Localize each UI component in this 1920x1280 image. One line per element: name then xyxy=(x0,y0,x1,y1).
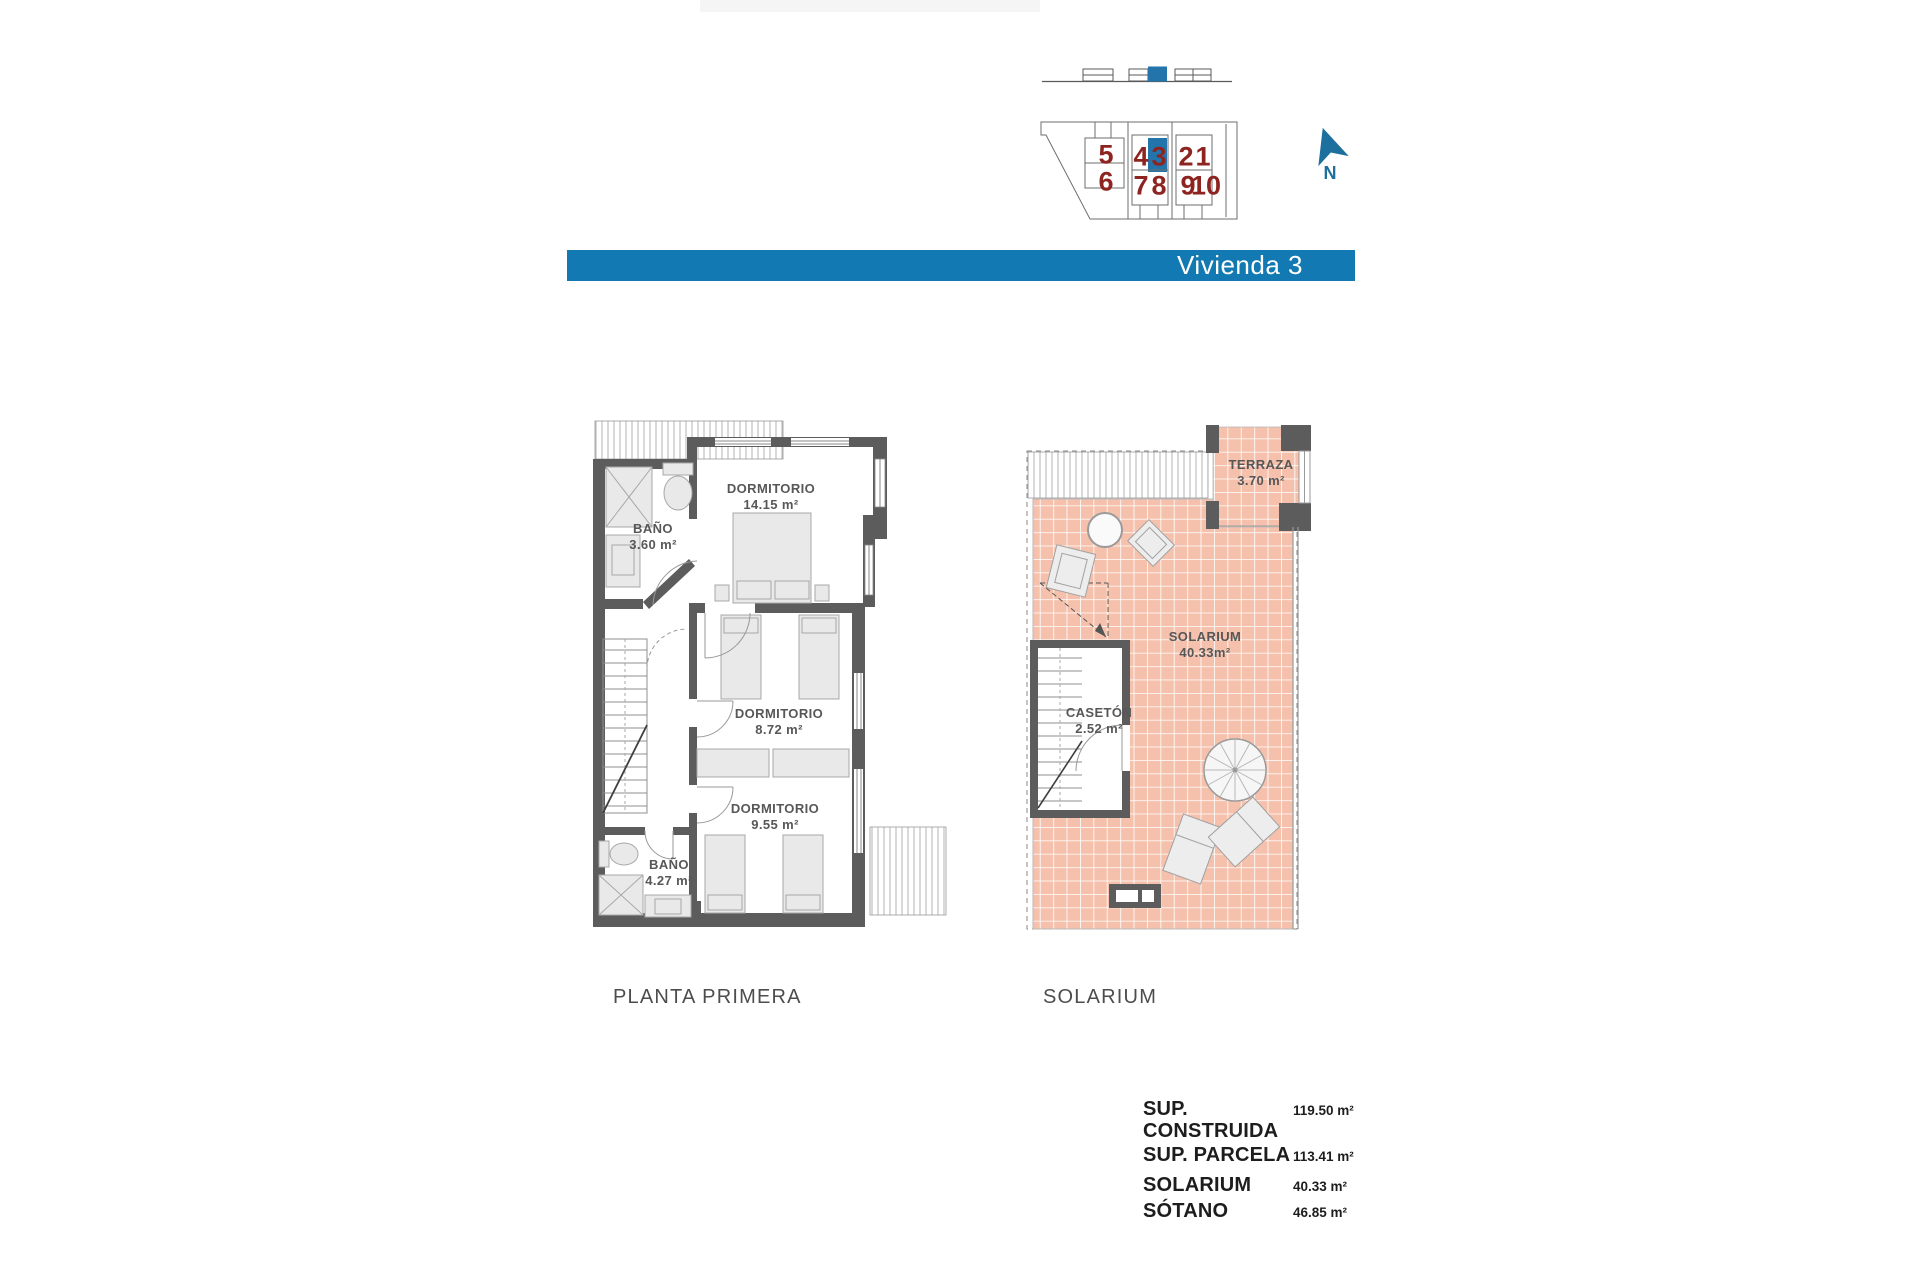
unit-number-2: 2 xyxy=(1178,144,1193,171)
room-label-terraza: TERRAZA 3.70 m² xyxy=(1229,457,1294,490)
round-table xyxy=(1088,513,1122,547)
summary-row-solarium: SOLARIUM 40.33 m² xyxy=(1143,1174,1354,1198)
caption-planta-primera: PLANTA PRIMERA xyxy=(613,986,802,1009)
room-label-bano-1: BAÑO 3.60 m² xyxy=(629,521,677,554)
plan-planta-primera: BAÑO 3.60 m² DORMITORIO 14.15 m² DORMITO… xyxy=(593,417,950,947)
room-label-dormitorio-2: DORMITORIO 8.72 m² xyxy=(735,706,823,739)
room-label-solarium: SOLARIUM 40.33m² xyxy=(1169,629,1242,662)
roof-hatch-bottom-right xyxy=(870,827,946,915)
summary-row-sotano: SÓTANO 46.85 m² xyxy=(1143,1200,1354,1224)
north-label: N xyxy=(1324,163,1337,183)
banner-title: Vivienda 3 xyxy=(567,250,1355,281)
wardrobe xyxy=(773,749,849,777)
unit-number-10: 10 xyxy=(1191,173,1221,200)
unit-number-3: 3 xyxy=(1151,144,1166,171)
summary-table: SUP. CONSTRUIDA 119.50 m² SUP. PARCELA 1… xyxy=(1143,1098,1354,1226)
plan-solarium: TERRAZA 3.70 m² SOLARIUM 40.33m² CASETÓN… xyxy=(1013,425,1338,955)
banner: Vivienda 3 xyxy=(567,250,1355,281)
brochure-page: 5 6 4 3 7 8 2 1 9 10 N Vivienda 3 xyxy=(0,0,1920,1280)
unit-number-4: 4 xyxy=(1133,144,1148,171)
north-arrow-icon: N xyxy=(1306,124,1350,184)
summary-row-sup-parcela: SUP. PARCELA 113.41 m² xyxy=(1143,1144,1354,1168)
unit-number-8: 8 xyxy=(1151,173,1166,200)
unit-number-5: 5 xyxy=(1098,142,1113,169)
room-label-dormitorio-3: DORMITORIO 9.55 m² xyxy=(731,801,819,834)
toilet-1 xyxy=(663,463,693,475)
room-label-bano-2: BAÑO 4.27 m² xyxy=(645,857,693,890)
room-label-dormitorio-1: DORMITORIO 14.15 m² xyxy=(727,481,815,514)
unit-number-6: 6 xyxy=(1098,169,1113,196)
site-locator: 5 6 4 3 7 8 2 1 9 10 xyxy=(1036,58,1346,238)
unit-number-7: 7 xyxy=(1133,173,1148,200)
toilet-2 xyxy=(599,841,609,867)
site-elevation xyxy=(1040,60,1235,86)
wardrobe xyxy=(697,749,769,777)
page-top-artifact xyxy=(700,0,1040,12)
elevation-highlighted-unit xyxy=(1148,67,1167,82)
solarium-drawing xyxy=(1013,425,1338,955)
pergola-hatch xyxy=(1028,452,1208,498)
room-label-caseton: CASETÓN 2.52 m² xyxy=(1066,705,1132,738)
staircase xyxy=(603,639,647,813)
summary-row-sup-construida: SUP. CONSTRUIDA 119.50 m² xyxy=(1143,1098,1354,1142)
caption-solarium: SOLARIUM xyxy=(1043,986,1157,1009)
unit-number-1: 1 xyxy=(1195,144,1210,171)
north-arrow: N xyxy=(1306,124,1350,184)
